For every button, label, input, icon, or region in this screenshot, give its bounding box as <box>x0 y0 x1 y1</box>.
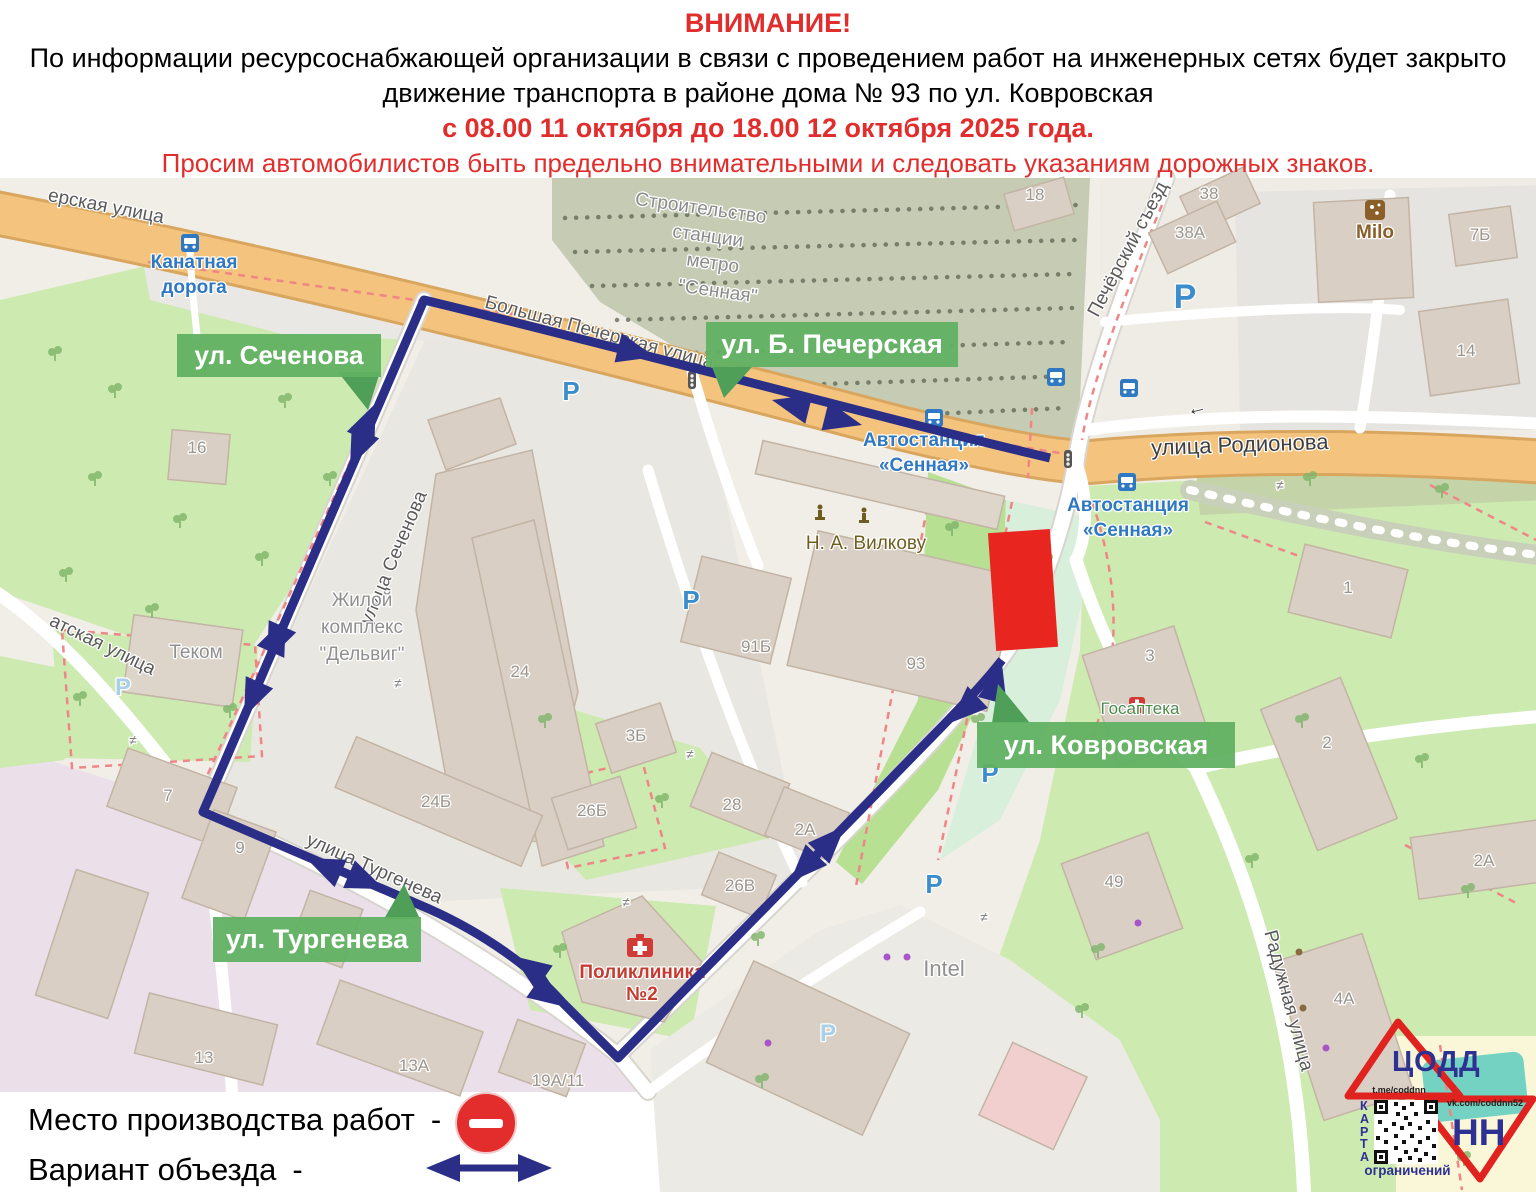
logo-karta-vertical: КАРТА <box>1360 1100 1373 1164</box>
driver-warning: Просим автомобилистов быть предельно вни… <box>0 146 1536 181</box>
notice-line-2: движение транспорта в районе дома № 93 п… <box>0 76 1536 111</box>
badge-turgeneva: ул. Тургенева <box>213 917 421 962</box>
parking-icon: P <box>925 869 942 899</box>
map-label: 7Б <box>1470 225 1491 244</box>
map-label: 18 <box>1026 185 1045 204</box>
map-label: «Сенная» <box>1083 520 1173 541</box>
map-label: 2 <box>1322 733 1331 752</box>
map-label: 3Б <box>626 726 647 745</box>
legend-work-site: Место производства работ- <box>28 1102 441 1138</box>
map-label: ≠ <box>980 909 988 925</box>
map-label: №2 <box>626 984 658 1005</box>
legend-detour-label: Вариант объезда <box>28 1152 276 1187</box>
map-label: 26Б <box>577 801 607 820</box>
map-label: 2А <box>795 820 816 839</box>
logo-vk: vk.com/coddnn52 <box>1443 1098 1527 1108</box>
map-label: Intel <box>923 956 965 981</box>
parking-icon: P <box>682 585 699 615</box>
no-entry-icon <box>455 1092 517 1154</box>
logo-nn: НН <box>1452 1112 1505 1154</box>
map-label: ≠ <box>129 732 137 748</box>
map-label: 19А/11 <box>532 1071 585 1090</box>
map-label: Поликлиника <box>579 962 705 983</box>
map-label: 93 <box>907 654 926 673</box>
map-label: 49 <box>1105 872 1124 891</box>
map-label: 14 <box>1457 341 1476 360</box>
logo-org-name: ЦОДД <box>1392 1046 1478 1079</box>
parking-icon: P <box>1174 278 1197 316</box>
map-label: «Сенная» <box>879 455 969 476</box>
map-label: "Дельвиг" <box>320 644 405 665</box>
logo-restrictions: ограничений <box>1350 1163 1465 1178</box>
closure-dates: с 08.00 11 октября до 18.00 12 октября 2… <box>0 111 1536 146</box>
map-label: 16 <box>188 438 207 457</box>
map-label: 9 <box>235 838 244 857</box>
legend-detour: Вариант объезда- <box>28 1152 303 1188</box>
map-label: 26В <box>725 876 755 895</box>
legend-dash: - <box>431 1102 441 1137</box>
badge-sechenova: ул. Сеченова <box>177 334 381 377</box>
attention-title: ВНИМАНИЕ! <box>0 6 1536 41</box>
legend-work-site-label: Место производства работ <box>28 1102 415 1137</box>
map-label: 24 <box>511 662 530 681</box>
map-label: Н. А. Вилкову <box>806 533 927 554</box>
map-label: 1 <box>1343 578 1352 597</box>
map-label: Жилой <box>332 590 393 611</box>
parking-icon: P <box>562 376 579 406</box>
map-label: Теком <box>169 642 222 663</box>
notice-line-1: По информации ресурсоснабжающей организа… <box>0 41 1536 76</box>
logo-telegram: t.me/coddnn <box>1363 1085 1435 1095</box>
map-label: Госаптека <box>1101 699 1181 718</box>
map-label: дорога <box>161 277 227 298</box>
map-label: ≠ <box>394 675 402 691</box>
map-label: Канатная <box>151 252 238 273</box>
badge-kovrovskaya: ул. Ковровская <box>977 722 1235 768</box>
gallery-icon <box>1365 200 1385 220</box>
map-label: 2А <box>1474 851 1495 870</box>
map-label: комплекс <box>321 617 403 638</box>
two-way-arrow-icon <box>424 1148 554 1188</box>
legend-dash: - <box>292 1152 302 1187</box>
road-closure-marker <box>988 529 1058 651</box>
map-label: Автостанция <box>1067 495 1189 516</box>
road-closure-flyer: ерская улицаБольшая Печерская улицаулица… <box>0 0 1536 1192</box>
map-label: 38А <box>1175 223 1206 242</box>
map-label: 4А <box>1334 989 1355 1008</box>
map-label: 13А <box>399 1056 430 1075</box>
map-label: 7 <box>163 786 172 805</box>
map-label: ≠ <box>622 894 630 910</box>
map-label: 91Б <box>741 637 771 656</box>
map-label: 13 <box>195 1048 214 1067</box>
map-label: 3 <box>1145 646 1154 665</box>
map-label: 28 <box>723 795 742 814</box>
qr-code <box>1374 1100 1438 1164</box>
map-label: ≠ <box>1276 477 1284 493</box>
map-label: ≠ <box>686 746 694 762</box>
badge-pecherskaya: ул. Б. Печерская <box>706 322 958 367</box>
map-label: 24Б <box>421 792 451 811</box>
map-label: 38 <box>1200 184 1219 203</box>
map-label: Milo <box>1356 222 1394 243</box>
parking-icon: P <box>820 1020 836 1047</box>
parking-icon: P <box>115 674 131 701</box>
